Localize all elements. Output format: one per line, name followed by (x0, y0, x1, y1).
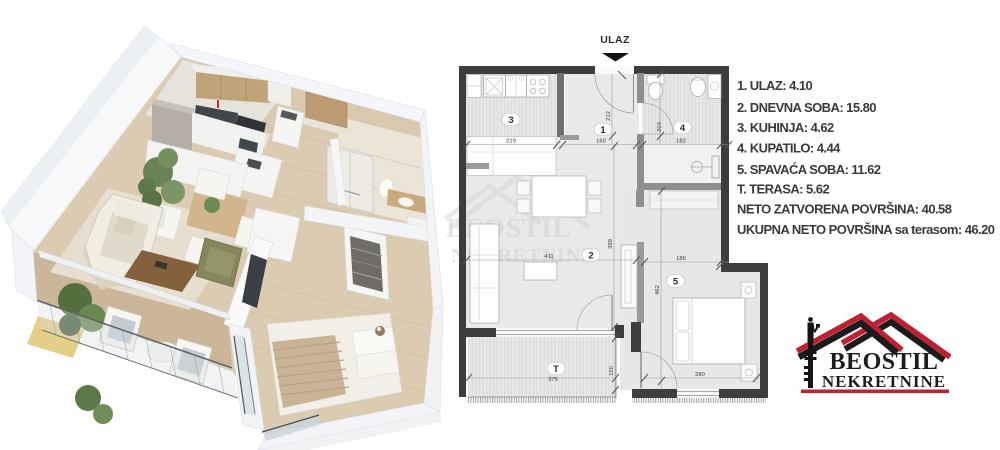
svg-text:UKUPNA NETO POVRŠINA sa teraso: UKUPNA NETO POVRŠINA sa terasom: 46.20 (737, 222, 995, 237)
svg-text:2: 2 (588, 251, 593, 262)
svg-text:1: 1 (600, 125, 606, 136)
svg-text:2. DNEVNA SOBA: 15.80: 2. DNEVNA SOBA: 15.80 (737, 100, 876, 115)
svg-text:4. KUPATILO: 4.44: 4. KUPATILO: 4.44 (737, 141, 841, 156)
svg-text:462: 462 (655, 285, 661, 295)
svg-text:182: 182 (676, 139, 686, 145)
svg-text:411: 411 (544, 254, 553, 260)
svg-text:280: 280 (695, 372, 705, 378)
svg-text:160: 160 (596, 139, 606, 145)
svg-text:399: 399 (608, 239, 614, 249)
svg-text:NEKRETNINE: NEKRETNINE (822, 372, 946, 391)
svg-text:T. TERASA: 5.62: T. TERASA: 5.62 (737, 182, 829, 197)
svg-text:186: 186 (676, 256, 686, 262)
svg-text:212: 212 (606, 111, 612, 121)
svg-text:NETO ZATVORENA POVRŠINA: 40.58: NETO ZATVORENA POVRŠINA: 40.58 (737, 202, 952, 217)
svg-text:203: 203 (657, 122, 663, 132)
svg-text:150: 150 (609, 366, 615, 376)
svg-text:1. ULAZ: 4.10: 1. ULAZ: 4.10 (737, 78, 813, 93)
svg-text:5. SPAVAĆA SOBA: 11.62: 5. SPAVAĆA SOBA: 11.62 (737, 162, 881, 177)
svg-text:219: 219 (506, 139, 516, 145)
svg-text:3. KUHINJA: 4.62: 3. KUHINJA: 4.62 (737, 120, 834, 135)
svg-text:T: T (553, 364, 559, 375)
svg-text:375: 375 (548, 377, 558, 383)
svg-text:4: 4 (680, 123, 686, 134)
svg-text:3: 3 (508, 115, 513, 126)
svg-text:ULAZ: ULAZ (600, 34, 630, 46)
svg-text:5: 5 (673, 277, 679, 288)
